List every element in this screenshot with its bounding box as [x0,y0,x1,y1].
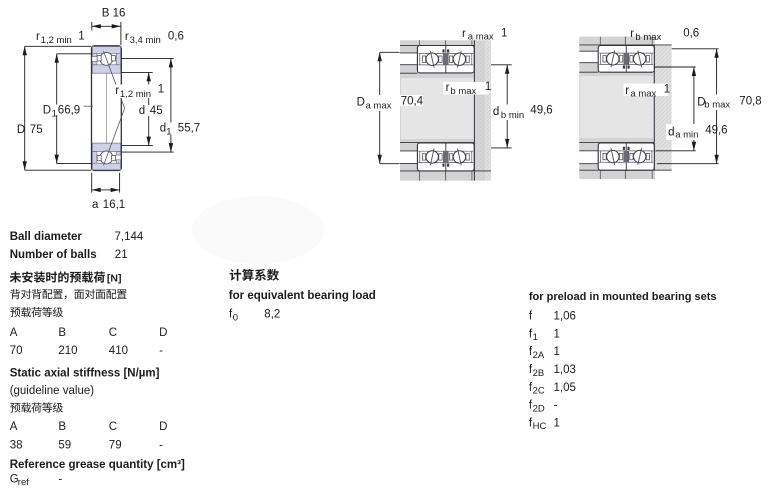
svg-text:70,8: 70,8 [739,95,761,107]
svg-text:D: D [357,97,365,109]
svg-text:1: 1 [485,81,491,93]
svg-text:Reference grease quantity [cm³: Reference grease quantity [cm³] [10,459,185,471]
svg-text:d: d [160,123,166,135]
svg-text:C: C [109,327,117,339]
svg-text:-: - [554,400,558,412]
svg-text:b max: b max [635,32,661,43]
svg-text:C: C [109,421,117,433]
svg-text:r: r [125,31,129,43]
svg-text:70: 70 [10,345,23,357]
svg-text:r: r [462,28,466,40]
svg-text:1: 1 [554,346,560,358]
svg-text:1: 1 [501,27,507,39]
svg-text:b max: b max [450,86,476,97]
svg-text:1: 1 [533,332,538,343]
svg-text:1: 1 [554,328,560,340]
svg-text:0: 0 [233,312,238,323]
svg-text:r: r [630,28,634,40]
svg-text:1,06: 1,06 [554,311,576,323]
svg-text:for preload in mounted bearing: for preload in mounted bearing sets [529,291,717,303]
svg-text:0,6: 0,6 [683,28,699,40]
svg-text:-: - [58,473,62,485]
svg-text:a max: a max [630,88,656,99]
svg-text:r: r [36,31,40,43]
svg-text:r: r [625,85,629,97]
svg-text:8,2: 8,2 [264,309,280,321]
svg-text:d: d [493,106,499,118]
svg-text:Number of balls: Number of balls [10,249,97,261]
svg-text:r: r [446,82,450,94]
svg-text:0,6: 0,6 [168,31,184,43]
svg-text:21: 21 [115,249,128,261]
svg-text:45: 45 [150,105,163,117]
svg-text:d: d [139,105,145,117]
svg-text:3,4 min: 3,4 min [130,35,161,46]
svg-text:D: D [159,421,167,433]
svg-text:2A: 2A [533,350,545,361]
svg-text:1: 1 [52,108,57,119]
svg-text:70,4: 70,4 [401,96,424,108]
svg-text:d: d [668,126,674,138]
svg-text:1: 1 [158,84,164,96]
svg-text:B: B [58,327,66,339]
svg-text:a max: a max [468,32,494,43]
svg-text:a: a [92,199,99,211]
svg-text:Ball diameter: Ball diameter [10,231,83,243]
svg-text:[N]: [N] [107,272,122,284]
svg-text:Static axial stiffness [N/µm]: Static axial stiffness [N/µm] [10,368,160,380]
svg-text:B: B [58,421,66,433]
svg-text:D: D [17,124,25,136]
svg-text:7,144: 7,144 [115,231,144,243]
svg-text:a min: a min [675,130,698,141]
svg-text:55,7: 55,7 [178,123,200,135]
svg-text:D: D [43,105,51,117]
svg-text:A: A [10,421,18,433]
svg-text:1: 1 [664,84,670,96]
svg-text:1: 1 [166,126,171,137]
svg-text:2C: 2C [533,386,545,397]
svg-text:r: r [115,85,119,97]
svg-text:B 16: B 16 [102,8,126,20]
svg-text:-: - [159,440,163,452]
svg-text:1,05: 1,05 [554,382,576,394]
svg-text:1,03: 1,03 [554,364,576,376]
svg-text:A: A [10,327,18,339]
svg-text:1,2 min: 1,2 min [41,35,72,46]
svg-text:16,1: 16,1 [103,199,125,211]
svg-text:210: 210 [58,345,77,357]
svg-text:38: 38 [10,440,23,452]
svg-text:59: 59 [58,440,71,452]
svg-text:79: 79 [109,440,122,452]
svg-text:b max: b max [704,99,730,110]
svg-text:ref: ref [18,477,29,488]
svg-text:1,2 min: 1,2 min [120,89,151,100]
svg-text:a max: a max [366,100,392,111]
svg-text:1: 1 [78,31,84,43]
svg-text:2B: 2B [533,368,545,379]
svg-text:2D: 2D [533,403,545,414]
svg-text:D: D [159,327,167,339]
svg-text:(guideline value): (guideline value) [10,385,95,397]
svg-text:b min: b min [501,110,524,121]
svg-text:for equivalent bearing load: for equivalent bearing load [229,290,376,302]
svg-text:HC: HC [533,421,547,432]
svg-text:-: - [159,345,163,357]
svg-text:66,9: 66,9 [58,105,80,117]
svg-text:1: 1 [554,417,560,429]
svg-text:49,6: 49,6 [530,105,552,117]
svg-text:410: 410 [109,345,128,357]
svg-text:75: 75 [30,124,43,136]
